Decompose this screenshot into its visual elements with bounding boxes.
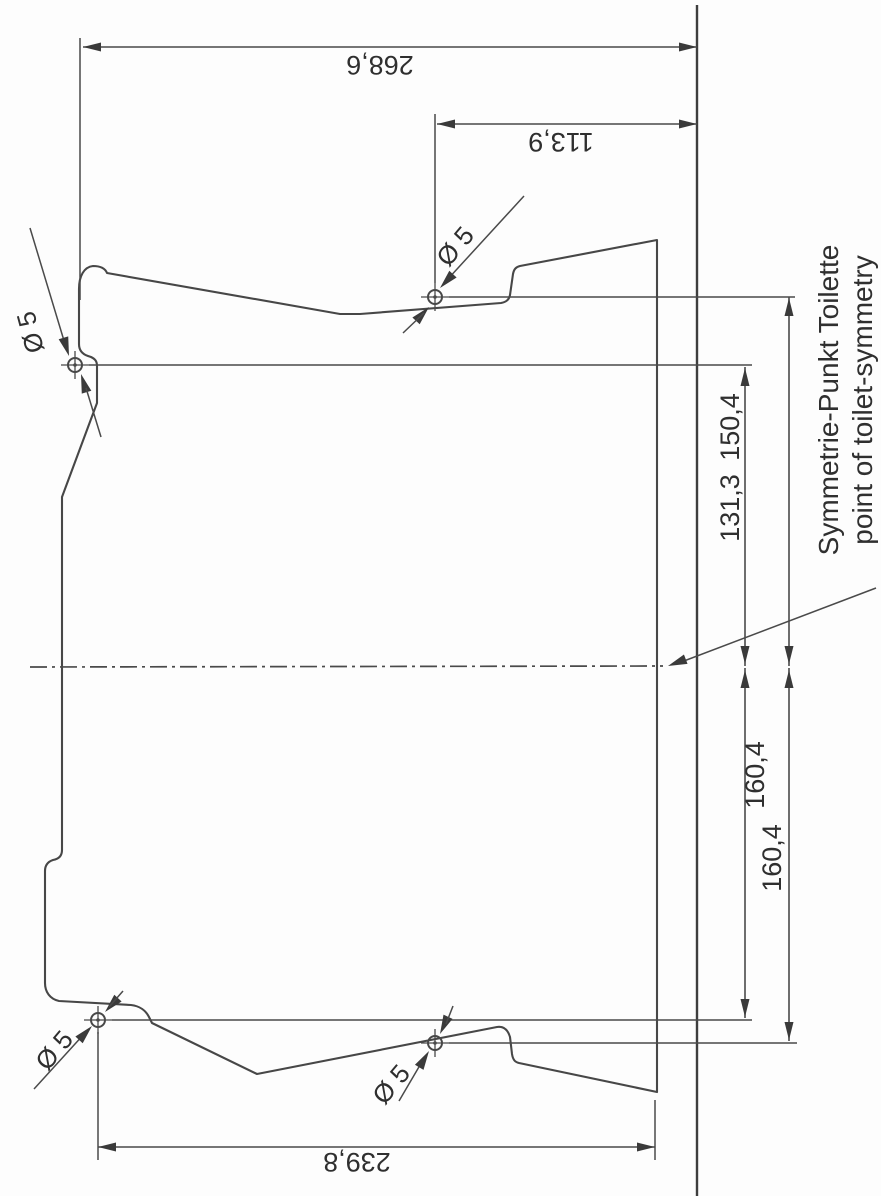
dimension-overall-label: 268,6 — [346, 50, 414, 80]
symmetry-leader-line — [676, 588, 876, 664]
dimension-overall: 268,6 — [83, 43, 697, 81]
dimension-bottom-span-label: 239,8 — [323, 1147, 391, 1177]
dimension-upper-outer-label: 150,4 — [715, 393, 745, 461]
dimension-lower-outer: 160,4 — [757, 668, 794, 1041]
callout-hole-bottom-left-label: Ø 5 — [29, 1025, 79, 1076]
dimension-lower-inner-label: 160,4 — [740, 741, 770, 809]
callout-hole-bottom-middle: Ø 5 — [366, 1006, 453, 1110]
dimension-bottom-span: 239,8 — [98, 1143, 655, 1178]
hole-bottom-middle — [421, 1029, 449, 1057]
callout-hole-bottom-middle-label: Ø 5 — [366, 1059, 416, 1110]
technical-drawing: 268,6 113,9 239,8 131,3 150,4 160,4 — [0, 0, 881, 1196]
callout-hole-top-middle: Ø 5 — [403, 196, 524, 333]
callout-hole-top-left: Ø 5 — [10, 228, 101, 437]
dimension-hole-to-wall: 113,9 — [437, 120, 697, 158]
drawing-sheet: 268,6 113,9 239,8 131,3 150,4 160,4 — [0, 0, 881, 1196]
callout-hole-top-left-label: Ø 5 — [10, 308, 50, 356]
symmetry-leader-arrow — [666, 655, 687, 671]
symmetry-note-english: point of toilet-symmetry — [847, 255, 878, 544]
symmetry-centerline — [30, 666, 663, 667]
symmetry-note-german: Symmetrie-Punkt Toilette — [813, 245, 844, 556]
dimension-upper-inner-label: 131,3 — [715, 474, 745, 542]
callout-hole-top-middle-label: Ø 5 — [430, 221, 480, 272]
dimension-lower-outer-label: 160,4 — [757, 824, 787, 892]
dimension-hole-to-wall-label: 113,9 — [528, 127, 594, 157]
callout-hole-bottom-left: Ø 5 — [29, 991, 123, 1089]
